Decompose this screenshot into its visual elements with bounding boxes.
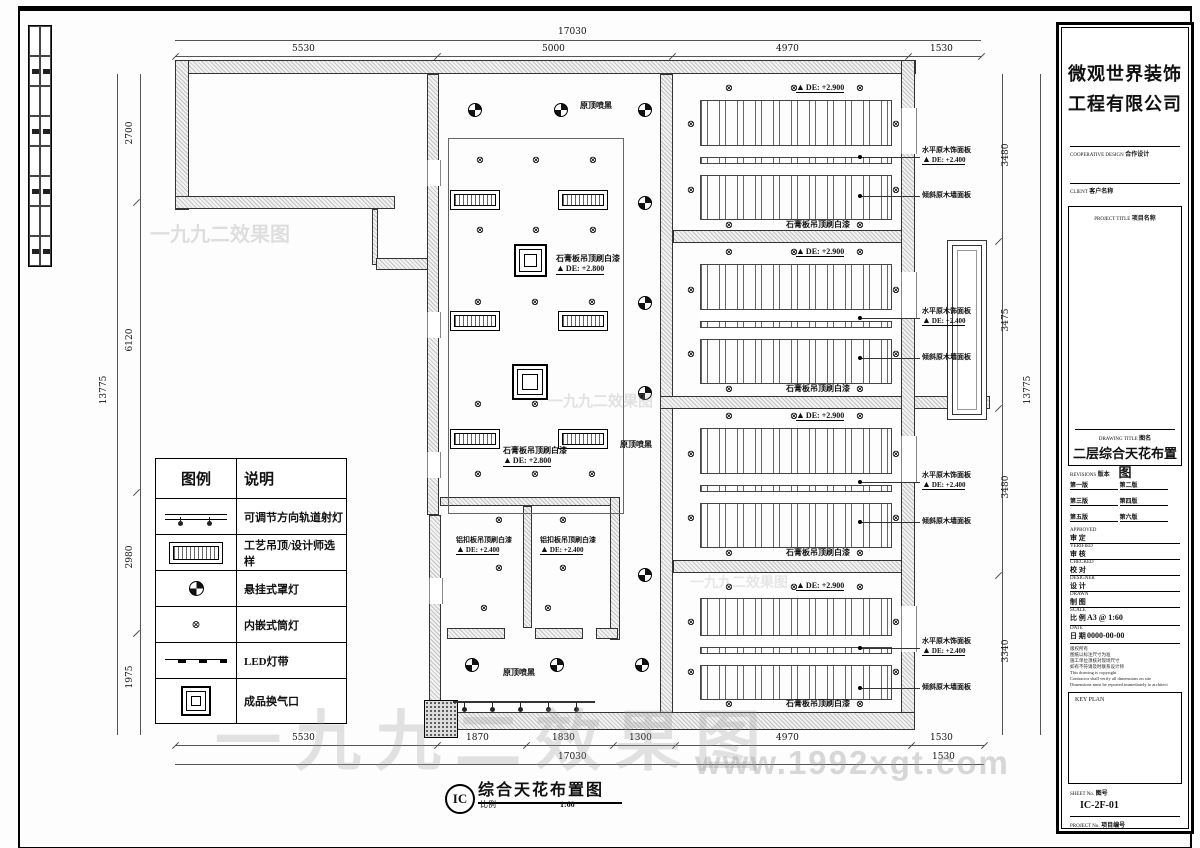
dimension-text: 3475 xyxy=(1001,298,1011,342)
level-label: DE: +2.900 xyxy=(796,410,844,421)
strip-cell xyxy=(29,56,40,86)
downlight-icon xyxy=(473,400,483,410)
pendant-lamp-icon xyxy=(550,658,564,672)
signoff-zh: 校 对 xyxy=(1070,566,1086,574)
level-row: DE: +2.400 xyxy=(540,544,583,555)
level-text: DE: +2.900 xyxy=(806,247,844,256)
sheet-no-en: SHEET No. xyxy=(1070,792,1094,797)
level-text: DE: +2.900 xyxy=(806,581,844,590)
ceiling-material-label: 石膏板吊顶刷白漆 DE: +2.800 xyxy=(503,446,567,467)
material-text: 石膏板吊顶刷白漆 xyxy=(556,254,620,263)
sheet-number: IC-2F-01 xyxy=(1080,800,1119,811)
callout-label: 水平原木饰面板 DE: +2.400 xyxy=(922,146,971,165)
air-vent-icon xyxy=(514,244,547,277)
divider xyxy=(1070,816,1180,817)
legend-desc: LED灯带 xyxy=(237,643,346,678)
wall-segment xyxy=(175,196,395,209)
callout-leader xyxy=(862,482,920,483)
strip-cell xyxy=(40,26,51,56)
level-text: DE: +2.900 xyxy=(806,411,844,420)
ceiling-label: 原顶喷黑 xyxy=(580,101,612,110)
window-opening xyxy=(901,436,917,482)
downlight-icon xyxy=(686,120,696,130)
cooperative-label-zh: 合作设计 xyxy=(1125,152,1149,158)
callout-leader xyxy=(862,522,920,523)
wall-segment xyxy=(376,258,432,270)
downlight-icon xyxy=(475,156,485,166)
downlight-icon xyxy=(724,385,734,395)
downlight-icon xyxy=(558,516,568,526)
downlight-icon xyxy=(686,618,696,628)
downlight-icon xyxy=(473,470,483,480)
slat-band xyxy=(700,473,892,486)
track-head-icon xyxy=(207,521,212,526)
wall-segment xyxy=(429,515,441,711)
divider xyxy=(1070,146,1180,147)
downlight-icon: ⊗ xyxy=(156,607,237,642)
ceiling-material-label: 石膏板吊顶刷白漆 xyxy=(786,548,850,557)
watermark-text: 一九九二效果图 xyxy=(215,688,775,784)
pendant-lamp-icon xyxy=(465,658,479,672)
copyright-note: 施工单位须核对现场尺寸 xyxy=(1070,658,1120,664)
wall-segment xyxy=(610,497,620,640)
level-label: DE: +2.900 xyxy=(796,82,844,93)
signoff-zh: 设 计 xyxy=(1070,582,1086,590)
signoff-row: CHECKED校 对 xyxy=(1070,560,1180,576)
window-opening xyxy=(427,160,441,186)
watermark-text: 一九九二效果图 xyxy=(548,390,653,411)
level-text: DE: +2.800 xyxy=(566,264,604,273)
craft-ceiling-icon xyxy=(169,542,223,564)
callout-label: 倾斜原木墙面板 xyxy=(922,517,971,525)
downlight-icon xyxy=(686,668,696,678)
title-block-inner: 微观世界装饰 工程有限公司 COOPERATIVE DESIGN 合作设计 CL… xyxy=(1061,27,1189,829)
revision-item: 第一版 xyxy=(1070,480,1118,490)
level-label: DE: +2.900 xyxy=(796,580,844,591)
callout-leader xyxy=(862,318,920,319)
downlight-icon xyxy=(724,248,734,258)
callout-leader xyxy=(862,648,920,649)
cooperative-design-row: COOPERATIVE DESIGN 合作设计 xyxy=(1070,149,1149,158)
wall-segment xyxy=(523,506,532,628)
project-title-en: PROJECT TITLE xyxy=(1094,217,1130,222)
drawing-title-zh: 图名 xyxy=(1139,436,1151,442)
downlight-icon xyxy=(587,470,597,480)
cooperative-label-en: COOPERATIVE DESIGN xyxy=(1070,153,1124,158)
revision-pair: 第一版 第二版 xyxy=(1070,480,1180,490)
ceiling-material-label: 石膏板吊顶刷白漆 xyxy=(786,384,850,393)
sheet-no-row: SHEET No. 图号 xyxy=(1070,788,1108,797)
drawing-sheet: 原顶喷黑 原顶喷黑 石膏板吊顶刷白漆 DE: +2.800 石膏板吊顶刷白漆 D… xyxy=(0,0,1200,848)
signoff-row: DRAWN制 图 xyxy=(1070,592,1180,608)
signoff-zh: 制 图 xyxy=(1070,598,1086,606)
drawing-code-bubble: IC xyxy=(445,784,475,814)
downlight-icon xyxy=(473,298,483,308)
project-no-zh: 项目编号 xyxy=(1101,823,1125,829)
downlight-icon xyxy=(891,618,901,628)
callout-label: 水平原木饰面板 DE: +2.400 xyxy=(922,637,971,656)
revisions-row: REVISIONS 版本 xyxy=(1070,469,1110,478)
downlight-icon xyxy=(530,400,540,410)
dimension-line xyxy=(1040,74,1041,735)
track-light-icon xyxy=(165,514,227,520)
downlight-icon xyxy=(855,84,865,94)
callout-text: 水平原木饰面板 xyxy=(922,471,971,479)
revisions-label-en: REVISIONS xyxy=(1070,473,1096,478)
company-name-line2: 工程有限公司 xyxy=(1062,90,1188,119)
divider xyxy=(1070,183,1180,184)
dimension-text: 2700 xyxy=(125,111,135,155)
strip-cell xyxy=(29,236,40,266)
strip-cell xyxy=(40,146,51,176)
dimension-text: 13775 xyxy=(1023,368,1033,412)
wall-segment xyxy=(535,628,583,639)
strip-cell xyxy=(40,56,51,86)
downlight-icon xyxy=(855,385,865,395)
level-row: DE: +2.800 xyxy=(503,455,551,466)
level-row: DE: +2.800 xyxy=(556,263,604,274)
scale-en: SCALE xyxy=(1070,608,1086,613)
revision-item: 第二版 xyxy=(1120,480,1168,490)
legend-row: ⊗ 内嵌式筒灯 xyxy=(156,606,346,642)
signoff-row: DESIGNER设 计 xyxy=(1070,576,1180,592)
window-opening xyxy=(901,272,917,318)
level-row: DE: +2.400 xyxy=(456,544,499,555)
led-strip-icon xyxy=(165,659,227,663)
callout-text: 水平原木饰面板 xyxy=(922,146,971,154)
legend-desc: 可调节方向轨道射灯 xyxy=(237,499,346,534)
downlight-icon xyxy=(479,604,489,614)
legend-header-symbol: 图例 xyxy=(156,459,237,498)
ceiling-material-label: 铝扣板吊顶刷白漆 DE: +2.400 xyxy=(540,536,596,555)
dimension-text: 1975 xyxy=(125,655,135,699)
strip-cell xyxy=(29,176,40,206)
pendant-lamp-icon xyxy=(635,658,649,672)
pendant-lamp-icon xyxy=(638,103,652,117)
downlight-icon xyxy=(855,583,865,593)
downlight-icon xyxy=(789,84,799,94)
air-vent-icon xyxy=(181,686,211,716)
level-text: DE: +2.400 xyxy=(550,546,584,554)
pendant-lamp-icon xyxy=(638,568,652,582)
callout-leader xyxy=(862,157,920,158)
downlight-icon xyxy=(891,286,901,296)
elevation-triangle-icon xyxy=(540,546,550,554)
slat-ceiling-grid xyxy=(700,598,892,700)
downlight-icon xyxy=(530,298,540,308)
elevation-triangle-icon xyxy=(922,647,932,655)
window-opening xyxy=(427,452,441,478)
revision-strip xyxy=(28,25,52,267)
downlight-icon xyxy=(543,604,553,614)
revision-item: 第四版 xyxy=(1120,496,1168,506)
pendant-lamp-icon xyxy=(638,296,652,310)
wall-segment xyxy=(175,60,189,210)
scale-value: 1:60 xyxy=(560,800,575,809)
signoff-zh: 审 核 xyxy=(1070,550,1086,558)
downlight-icon xyxy=(855,700,865,710)
material-text: 石膏板吊顶刷白漆 xyxy=(503,446,567,455)
downlight-icon xyxy=(724,549,734,559)
dimension-line xyxy=(140,74,141,735)
legend-table: 图例 说明 可调节方向轨道射灯 工艺吊顶/设计师选样 悬挂式罩灯 ⊗ 内嵌式筒灯… xyxy=(155,458,347,724)
date-zh: 日 期 xyxy=(1070,632,1086,640)
ceiling-label: 原顶喷黑 xyxy=(620,440,652,449)
elevation-triangle-icon xyxy=(922,156,932,164)
downlight-icon xyxy=(494,516,504,526)
callout-text: 水平原木饰面板 xyxy=(922,307,971,315)
client-label-en: CLIENT xyxy=(1070,190,1088,195)
client-label-zh: 客户名称 xyxy=(1089,189,1113,195)
scale-zh: 比 例 xyxy=(1070,614,1086,622)
legend-row: 可调节方向轨道射灯 xyxy=(156,498,346,534)
signoff-row: APPROVED审 定 xyxy=(1070,528,1180,544)
elevation-triangle-icon xyxy=(503,456,513,465)
downlight-icon xyxy=(588,226,598,236)
downlight-icon xyxy=(891,450,901,460)
wall-segment xyxy=(372,209,378,265)
downlight-icon xyxy=(855,221,865,231)
craft-ceiling-icon xyxy=(450,190,500,210)
project-title-zh: 项目名称 xyxy=(1132,216,1156,222)
signoff-en: APPROVED xyxy=(1070,528,1096,533)
project-title-row: PROJECT TITLE 项目名称 xyxy=(1069,213,1181,222)
window-opening xyxy=(429,578,443,604)
downlight-icon xyxy=(891,668,901,678)
revision-item: 第六版 xyxy=(1120,512,1168,522)
project-no-en: PROJECT No. xyxy=(1070,824,1100,829)
callout-leader xyxy=(862,358,920,359)
dimension-text: 1530 xyxy=(930,733,953,743)
scale-row: SCALE比 例 A3 @ 1:60 xyxy=(1070,608,1180,626)
downlight-icon xyxy=(475,226,485,236)
copyright-note: Contractor shall verify all dimensions o… xyxy=(1070,676,1151,682)
downlight-icon xyxy=(558,564,568,574)
elevation-triangle-icon xyxy=(556,264,566,273)
drawing-title-en: DRAWING TITLE xyxy=(1099,437,1138,442)
slat-band xyxy=(700,163,892,176)
scale-value: A3 @ 1:60 xyxy=(1087,613,1123,622)
wall-segment xyxy=(660,396,990,409)
dimension-text: 5000 xyxy=(542,44,565,54)
callout-label: 水平原木饰面板 DE: +2.400 xyxy=(922,471,971,490)
copyright-note: Dimensions must be reported immediately … xyxy=(1070,682,1168,688)
dimension-line xyxy=(117,74,118,735)
downlight-icon xyxy=(789,412,799,422)
air-vent-icon xyxy=(512,364,548,400)
pendant-lamp-icon xyxy=(554,103,568,117)
project-title-box: PROJECT TITLE 项目名称 DRAWING TITLE 图名 二层综合… xyxy=(1068,206,1182,466)
craft-ceiling-icon xyxy=(558,190,608,210)
dimension-text: 4970 xyxy=(776,44,799,54)
strip-cell xyxy=(29,86,40,116)
downlight-icon xyxy=(530,470,540,480)
slat-band xyxy=(700,635,892,648)
wall-segment xyxy=(175,60,916,74)
craft-ceiling-icon xyxy=(450,429,500,449)
downlight-icon xyxy=(789,248,799,258)
revision-item: 第五版 xyxy=(1070,512,1118,522)
downlight-icon xyxy=(686,286,696,296)
sheet-no-zh: 图号 xyxy=(1096,791,1108,797)
strip-cell xyxy=(29,116,40,146)
strip-cell xyxy=(29,146,40,176)
downlight-icon xyxy=(855,248,865,258)
downlight-icon xyxy=(494,564,504,574)
dimension-text: 6120 xyxy=(125,318,135,362)
ceiling-label: 原顶喷黑 xyxy=(503,668,535,677)
strip-cell xyxy=(29,206,40,236)
dimension-text: 13775 xyxy=(99,368,109,412)
downlight-icon xyxy=(587,298,597,308)
level-text: DE: +2.400 xyxy=(932,156,966,164)
elevation-triangle-icon xyxy=(922,317,932,325)
dimension-text: 17030 xyxy=(558,27,587,37)
signoff-en: DRAWN xyxy=(1070,592,1089,597)
downlight-icon xyxy=(531,226,541,236)
dimension-text: 4970 xyxy=(776,733,799,743)
craft-ceiling-icon xyxy=(450,311,500,331)
wall-segment xyxy=(660,74,673,714)
dimension-text: 3340 xyxy=(1001,629,1011,673)
revision-pair: 第五版 第六版 xyxy=(1070,512,1180,522)
downlight-icon xyxy=(789,583,799,593)
copyright-note: This drawing is copyright xyxy=(1070,670,1116,676)
callout-label: 倾斜原木墙面板 xyxy=(922,191,971,199)
revision-item: 第三版 xyxy=(1070,496,1118,506)
legend-header-row: 图例 说明 xyxy=(156,459,346,498)
dimension-text: 5530 xyxy=(292,44,315,54)
key-plan-label: KEY PLAN xyxy=(1075,697,1104,703)
window-opening xyxy=(901,108,917,154)
strip-cell xyxy=(40,116,51,146)
slat-ceiling-grid xyxy=(700,264,892,384)
downlight-icon xyxy=(588,156,598,166)
watermark-text: 一九九二效果图 xyxy=(150,218,290,247)
dimension-text: 1530 xyxy=(930,44,953,54)
level-text: DE: +2.400 xyxy=(932,481,966,489)
dimension-text: 2980 xyxy=(125,535,135,579)
elevation-triangle-icon xyxy=(456,546,466,554)
downlight-icon xyxy=(686,450,696,460)
callout-label: 水平原木饰面板 DE: +2.400 xyxy=(922,307,971,326)
pendant-lamp-icon xyxy=(468,103,482,117)
ceiling-material-label: 石膏板吊顶刷白漆 xyxy=(786,699,850,708)
company-name-line1: 微观世界装饰 xyxy=(1062,60,1188,89)
level-label: DE: +2.900 xyxy=(796,246,844,257)
craft-ceiling-icon xyxy=(558,311,608,331)
date-en: DATE xyxy=(1070,626,1083,631)
callout-label: 倾斜原木墙面板 xyxy=(922,353,971,361)
window-bay xyxy=(947,240,987,420)
copyright-note: 图纸以标注尺寸为准 xyxy=(1070,652,1111,658)
wall-segment xyxy=(673,230,915,243)
project-no-row: PROJECT No. 项目编号 xyxy=(1070,820,1125,829)
pendant-lamp-icon xyxy=(189,581,204,596)
ceiling-material-label: 石膏板吊顶刷白漆 xyxy=(786,220,850,229)
level-text: DE: +2.900 xyxy=(806,83,844,92)
slat-ceiling-grid xyxy=(700,428,892,548)
wall-segment xyxy=(427,74,439,515)
downlight-icon xyxy=(724,221,734,231)
dimension-text: 3480 xyxy=(1001,465,1011,509)
material-text: 铝扣板吊顶刷白漆 xyxy=(540,536,596,544)
slat-band xyxy=(700,327,892,340)
watermark-text: 一九九二效果图 xyxy=(690,572,788,592)
level-text: DE: +2.400 xyxy=(932,647,966,655)
strip-cell xyxy=(29,26,40,56)
signoff-row: VERIFIED审 核 xyxy=(1070,544,1180,560)
downlight-icon xyxy=(686,186,696,196)
slat-band xyxy=(700,491,892,504)
downlight-icon xyxy=(531,156,541,166)
material-text: 铝扣板吊顶刷白漆 xyxy=(456,536,512,544)
downlight-icon xyxy=(855,412,865,422)
signoff-en: CHECKED xyxy=(1070,560,1094,565)
callout-label: 倾斜原木墙面板 xyxy=(922,683,971,691)
drawing-title-row: DRAWING TITLE 图名 xyxy=(1069,433,1181,442)
dimension-line xyxy=(175,56,981,57)
window-opening xyxy=(901,606,917,652)
signoff-en: DESIGNER xyxy=(1070,576,1095,581)
ceiling-material-label: 石膏板吊顶刷白漆 DE: +2.800 xyxy=(556,254,620,275)
copyright-note: 如有不符请及时联系设计师 xyxy=(1070,664,1124,670)
dimension-text: 3480 xyxy=(1001,133,1011,177)
date-value: 0000-00-00 xyxy=(1087,631,1124,640)
copyright-note: 版权所有 xyxy=(1070,646,1088,652)
slat-band xyxy=(700,309,892,322)
window-opening xyxy=(427,312,441,338)
level-text: DE: +2.800 xyxy=(513,456,551,465)
pendant-lamp-icon xyxy=(638,196,652,210)
level-text: DE: +2.400 xyxy=(466,546,500,554)
strip-cell xyxy=(40,236,51,266)
downlight-icon xyxy=(686,514,696,524)
key-plan-box: KEY PLAN xyxy=(1068,692,1182,784)
callout-leader xyxy=(862,196,920,197)
revision-pair: 第三版 第四版 xyxy=(1070,496,1180,506)
legend-row: 工艺吊顶/设计师选样 xyxy=(156,534,346,570)
signoff-zh: 审 定 xyxy=(1070,534,1086,542)
downlight-icon xyxy=(724,84,734,94)
title-block: 微观世界装饰 工程有限公司 COOPERATIVE DESIGN 合作设计 CL… xyxy=(1056,22,1194,834)
strip-cell xyxy=(40,176,51,206)
dimension-line xyxy=(175,40,981,41)
callout-text: 水平原木饰面板 xyxy=(922,637,971,645)
legend-desc: 工艺吊顶/设计师选样 xyxy=(237,535,346,570)
watermark-url: www.1992xgt.com xyxy=(695,744,1010,782)
wall-segment xyxy=(596,628,618,639)
signoff-en: VERIFIED xyxy=(1070,544,1093,549)
downlight-icon xyxy=(855,549,865,559)
downlight-icon xyxy=(891,186,901,196)
strip-cell xyxy=(40,86,51,116)
downlight-icon xyxy=(686,350,696,360)
callout-leader xyxy=(862,688,920,689)
wall-segment xyxy=(447,628,505,639)
legend-desc: 悬挂式罩灯 xyxy=(237,571,346,606)
level-text: DE: +2.400 xyxy=(932,317,966,325)
divider xyxy=(1075,429,1175,430)
downlight-icon xyxy=(724,412,734,422)
slat-band xyxy=(700,653,892,666)
revisions-label-zh: 版本 xyxy=(1098,472,1110,478)
legend-row: LED灯带 xyxy=(156,642,346,678)
legend-header-desc: 说明 xyxy=(237,459,346,498)
downlight-icon xyxy=(891,120,901,130)
client-row: CLIENT 客户名称 xyxy=(1070,186,1113,195)
legend-row: 悬挂式罩灯 xyxy=(156,570,346,606)
